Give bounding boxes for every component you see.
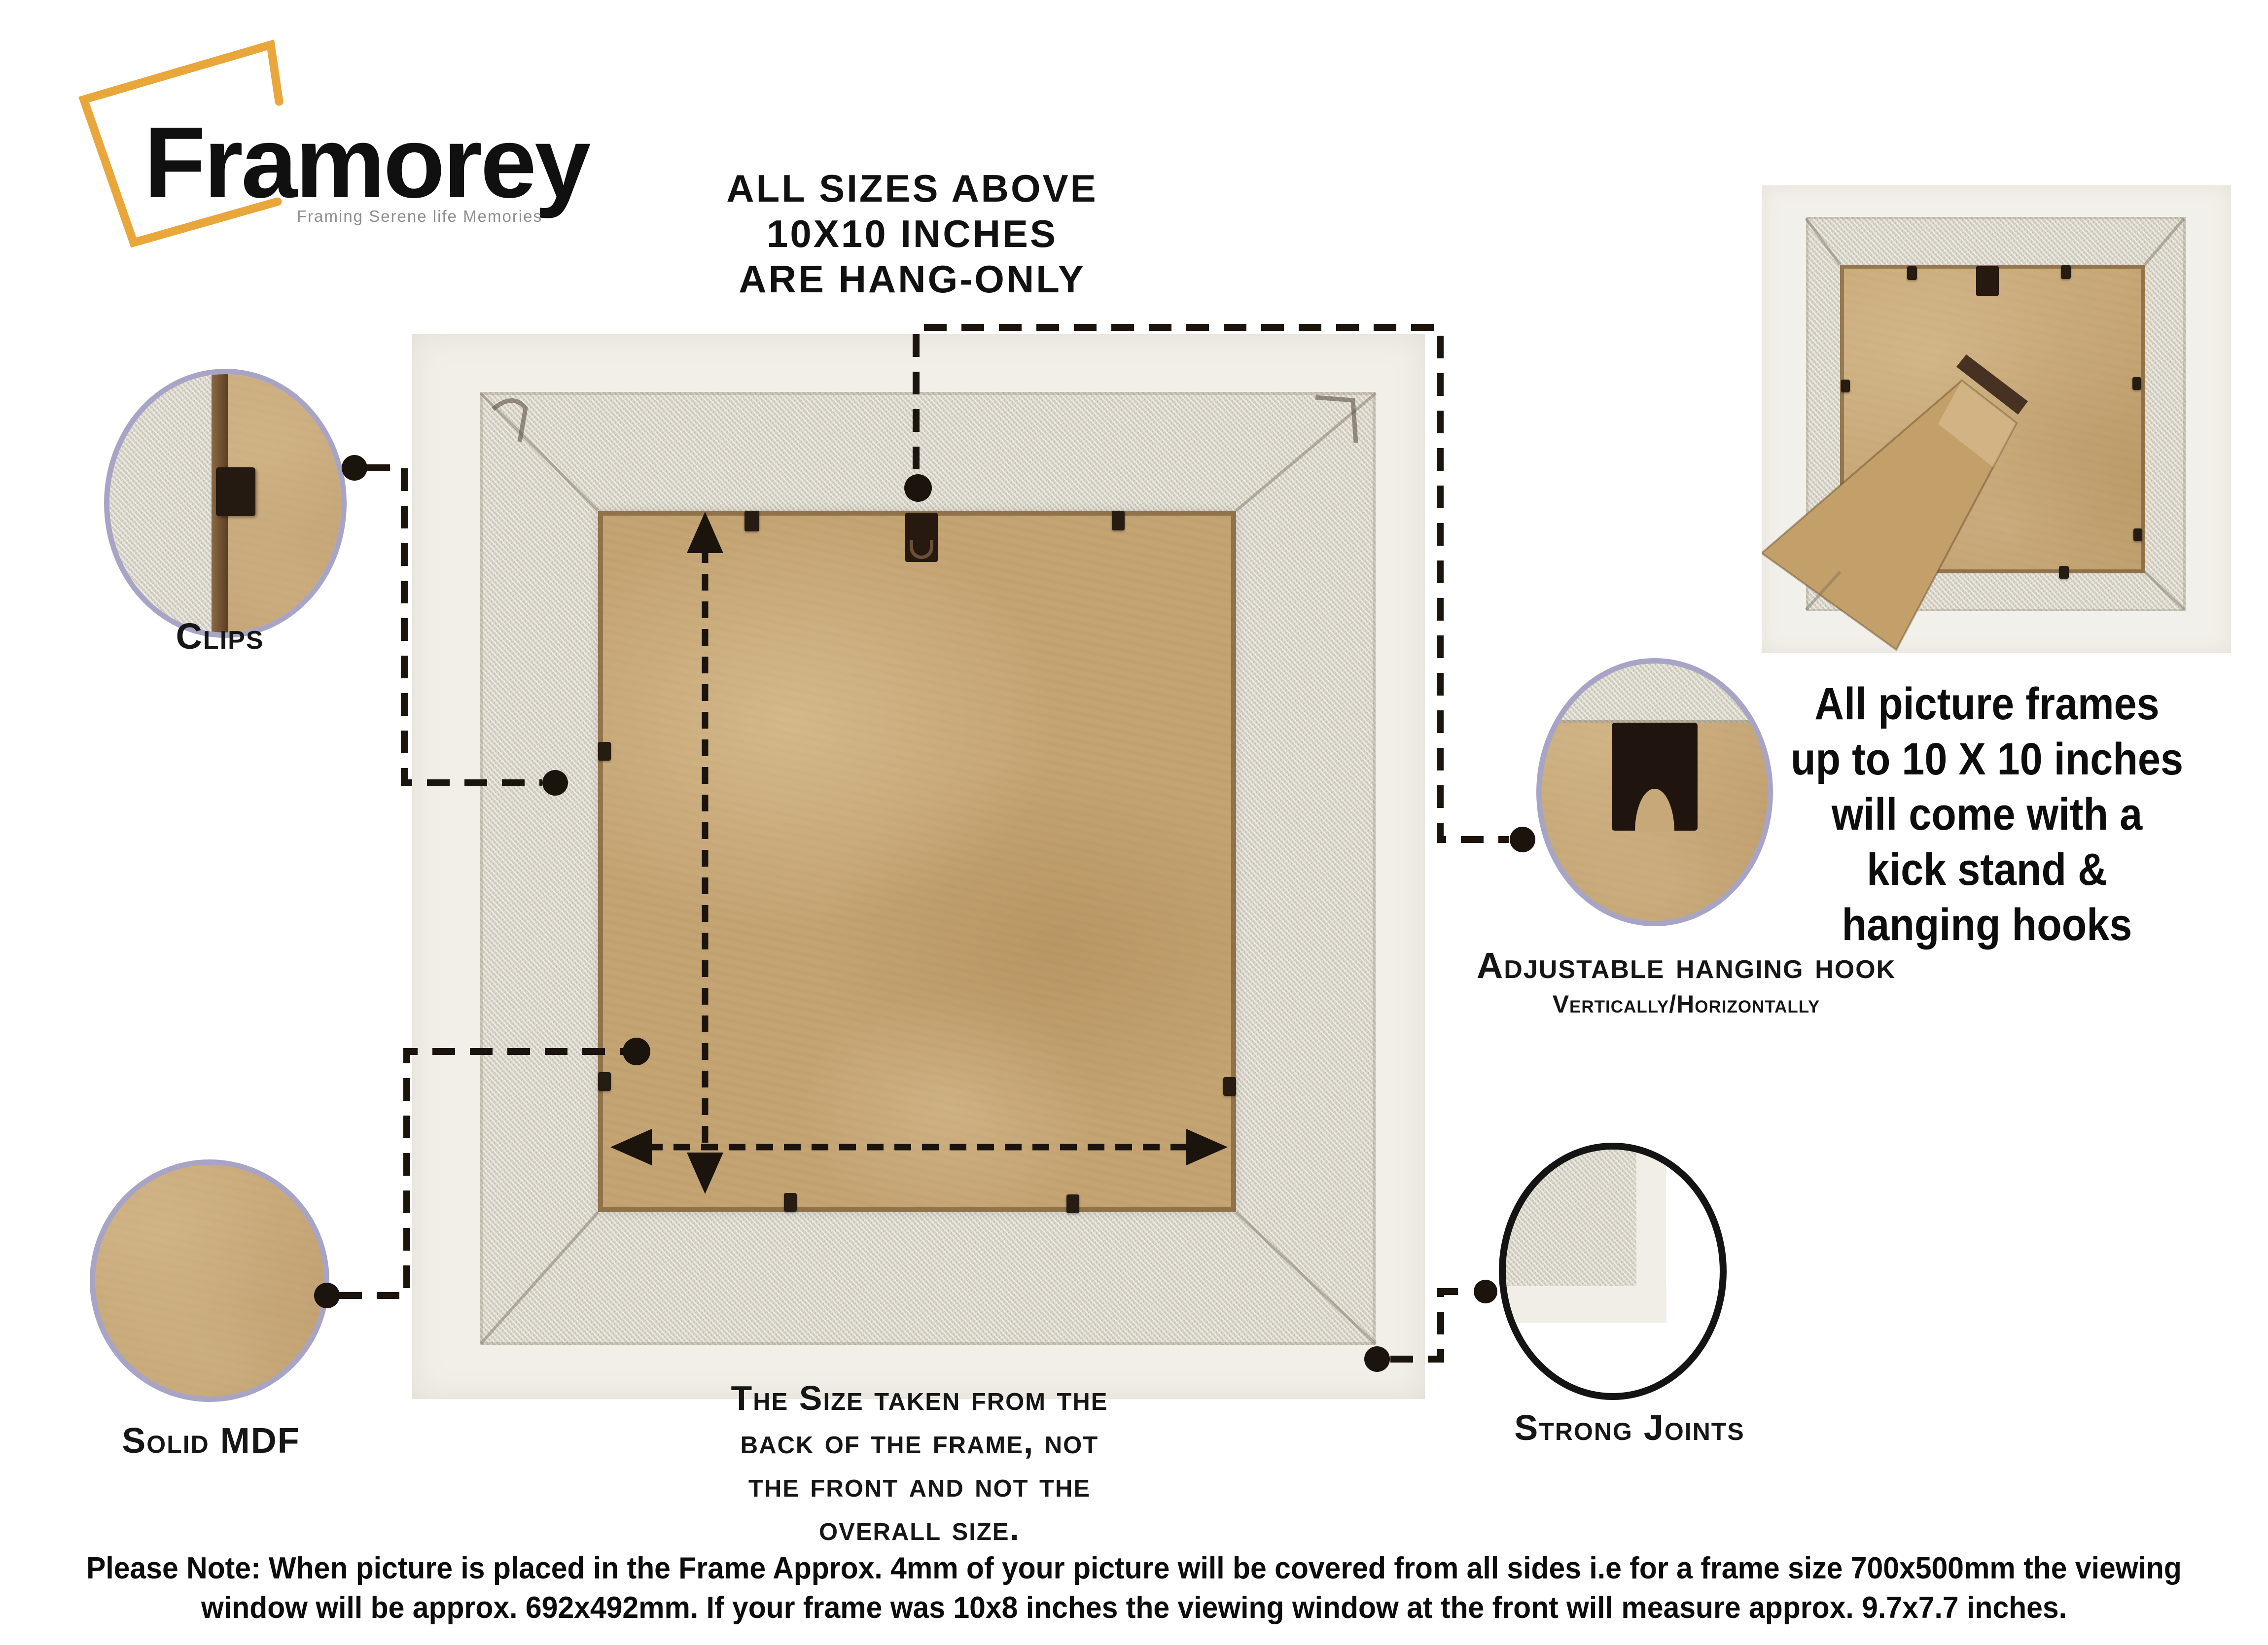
frame-border-detail <box>1636 1143 1666 1286</box>
clip <box>784 1193 797 1212</box>
strong-joints-detail-circle <box>1499 1143 1727 1400</box>
moulding-corner-detail <box>1499 1143 1636 1286</box>
brand-name: Framorey <box>144 105 589 221</box>
kick-stand <box>1762 185 2231 653</box>
size-note-line: back of the frame, not <box>656 1420 1183 1463</box>
frame-border-detail <box>1499 1286 1666 1323</box>
moulding-detail <box>109 374 212 632</box>
size-note-line: The Size taken from the <box>656 1376 1183 1420</box>
size-note-line: the front and not the <box>656 1463 1183 1506</box>
kickstand-note-line: will come with a <box>1752 787 2222 842</box>
hanging-hook <box>905 513 938 562</box>
hook-notch <box>1635 789 1674 832</box>
hang-only-note: ALL SIZES ABOVE 10X10 INCHES ARE HANG-ON… <box>715 166 1109 302</box>
size-note-line: overall size. <box>656 1506 1183 1550</box>
frame-back-photo <box>412 334 1425 1399</box>
clip <box>598 742 611 761</box>
clip <box>1066 1194 1079 1213</box>
clips-detail-circle <box>104 369 347 638</box>
hang-only-line: ARE HANG-ONLY <box>715 256 1109 302</box>
kickstand-frame-photo <box>1762 185 2231 653</box>
kickstand-note-line: hanging hooks <box>1752 897 2222 952</box>
solid-mdf-detail-circle <box>90 1159 329 1402</box>
footer-note-line2: window will be approx. 692x492mm. If you… <box>201 1590 2067 1625</box>
clips-label: Clips <box>72 615 368 657</box>
mdf-back-board <box>598 511 1236 1212</box>
footer-note-line1: Please Note: When picture is placed in t… <box>86 1551 2182 1586</box>
hook-icon <box>1612 723 1698 831</box>
clip-icon <box>216 467 255 517</box>
kickstand-note-line: kick stand & <box>1752 842 2222 897</box>
solid-mdf-label: Solid MDF <box>63 1421 359 1461</box>
hanging-hook-sublabel: Vertically/Horizontally <box>1410 990 1962 1018</box>
kickstand-note: All picture frames up to 10 X 10 inches … <box>1726 676 2248 952</box>
clip <box>598 1072 611 1091</box>
hang-only-line: 10X10 INCHES <box>715 211 1109 256</box>
size-note: The Size taken from the back of the fram… <box>656 1376 1183 1550</box>
clip <box>744 511 759 531</box>
clip <box>1112 511 1125 530</box>
clip <box>1223 1077 1236 1096</box>
hang-only-line: ALL SIZES ABOVE <box>715 166 1109 211</box>
brand-tagline: Framing Serene life Memories <box>297 207 542 226</box>
strong-joints-label: Strong Joints <box>1482 1408 1777 1448</box>
infographic-root: Framorey Framing Serene life Memories AL… <box>0 0 2268 1645</box>
kickstand-note-line: All picture frames <box>1752 676 2222 732</box>
kickstand-note-line: up to 10 X 10 inches <box>1752 732 2222 787</box>
